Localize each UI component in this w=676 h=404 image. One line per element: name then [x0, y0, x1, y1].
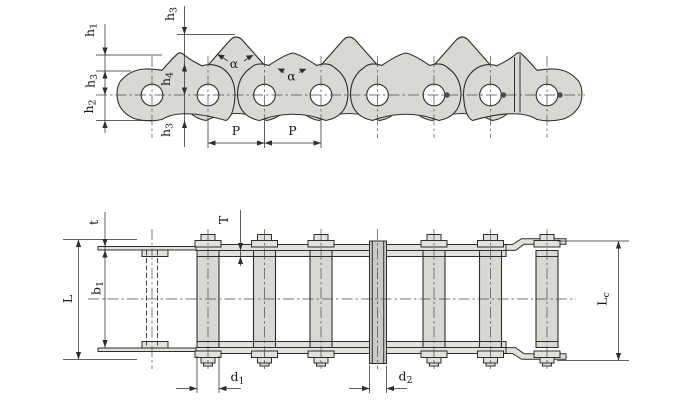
label-t: t: [86, 220, 101, 225]
label-pitch-2: P: [288, 123, 296, 138]
label-h2: h2: [81, 99, 99, 113]
inner-bar-bottom: [198, 342, 506, 348]
label-b1: b1: [89, 281, 107, 295]
plate-stub-top: [142, 250, 168, 257]
label-d2: d2: [398, 369, 412, 387]
bushing: [370, 241, 387, 364]
label-h3-top: h3: [162, 7, 180, 21]
outer-bar-top: [196, 245, 506, 251]
dimension-Lc: [557, 241, 629, 361]
dimension-T: [238, 210, 243, 266]
inner-bar-top: [198, 251, 506, 257]
label-alpha-1: α: [230, 56, 239, 71]
label-alpha-2: α: [287, 69, 296, 84]
label-h1: h1: [82, 23, 100, 37]
label-h3-left: h3: [83, 74, 101, 88]
chain-technical-drawing: h1 h3 h2 h3 h4 h3 α α P P t T L b1 Lc d1…: [0, 0, 676, 404]
bottom-view-plan: [63, 210, 629, 393]
label-h3-bottom: h3: [158, 123, 176, 137]
dimension-pitch: [208, 121, 321, 148]
label-d1: d1: [230, 369, 244, 387]
label-pitch-1: P: [232, 123, 240, 138]
label-L: L: [60, 295, 75, 303]
dimension-t-b1: [102, 212, 107, 348]
drawing-canvas: h1 h3 h2 h3 h4 h3 α α P P t T L b1 Lc d1…: [0, 0, 676, 404]
end-plate-bar-top: [98, 247, 198, 251]
label-T: T: [216, 215, 231, 224]
end-plate-bar-bottom: [98, 348, 198, 352]
plate-stub-bottom: [142, 342, 168, 349]
label-Lc: Lc: [595, 292, 613, 306]
outer-bar-bottom: [196, 348, 506, 354]
